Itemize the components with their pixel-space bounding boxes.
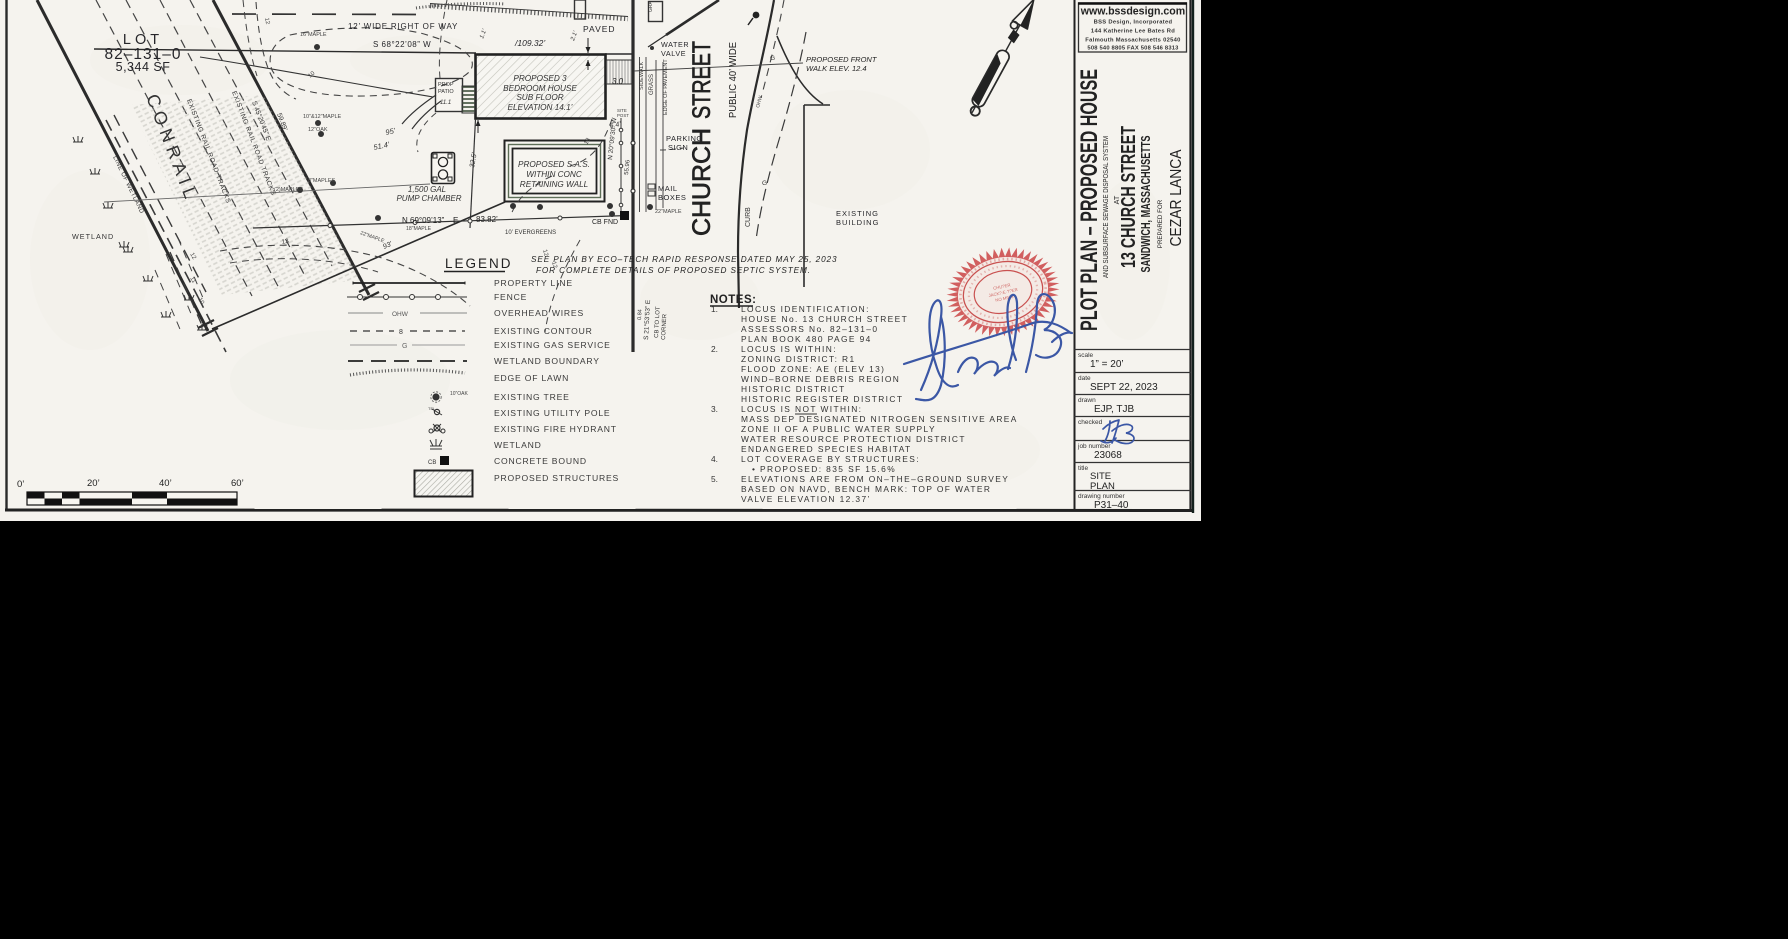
svg-text:2.: 2.: [711, 344, 718, 354]
svg-text:4.: 4.: [711, 454, 718, 464]
svg-text:10”OAK: 10”OAK: [450, 391, 468, 397]
svg-text:PARKING: PARKING: [666, 134, 703, 143]
svg-text:PROPERTY LINE: PROPERTY LINE: [494, 278, 573, 288]
svg-text:G: G: [770, 55, 775, 62]
svg-text:MASS DEP DESIGNATED NITROGEN S: MASS DEP DESIGNATED NITROGEN SENSITIVE A…: [741, 414, 1018, 424]
svg-text:G: G: [762, 180, 767, 187]
svg-text:PLAN BOOK 480 PAGE 94: PLAN BOOK 480 PAGE 94: [741, 334, 872, 344]
svg-text:PROPOSED 3: PROPOSED 3: [513, 74, 567, 83]
svg-text:SIGN: SIGN: [668, 143, 688, 152]
svg-text:date: date: [1078, 375, 1091, 382]
svg-text:PUBLIC 40’ WIDE: PUBLIC 40’ WIDE: [728, 42, 739, 118]
svg-text:SUB FLOOR: SUB FLOOR: [516, 93, 563, 102]
svg-text:scale: scale: [1078, 352, 1094, 359]
svg-text:AND SUBSURFACE SEWAGE DISPOSAL: AND SUBSURFACE SEWAGE DISPOSAL SYSTEM: [1101, 136, 1110, 278]
svg-text:PROPOSED FRONT: PROPOSED FRONT: [806, 55, 878, 64]
svg-text:SEPT 22, 2023: SEPT 22, 2023: [1090, 382, 1158, 393]
svg-text:PROPOSED S.A.S.: PROPOSED S.A.S.: [518, 160, 590, 169]
svg-text:WIND–BORNE DEBRIS REGION: WIND–BORNE DEBRIS REGION: [741, 374, 900, 384]
svg-text:40’: 40’: [159, 478, 172, 489]
svg-text:LOCUS IS NOT WITHIN:: LOCUS IS NOT WITHIN:: [741, 404, 862, 414]
svg-text:drawing number: drawing number: [1078, 493, 1125, 500]
svg-text:SIDEWALK: SIDEWALK: [639, 61, 645, 90]
svg-text:CB: CB: [428, 460, 436, 466]
svg-text:20’: 20’: [87, 478, 100, 489]
svg-text:EXISTING CONTOUR: EXISTING CONTOUR: [494, 326, 593, 336]
svg-text:S 68°22’08” W: S 68°22’08” W: [373, 40, 431, 49]
svg-text:CEZAR LANCA: CEZAR LANCA: [1168, 149, 1185, 246]
svg-text:P31–40: P31–40: [1094, 500, 1129, 511]
svg-text:LEGEND: LEGEND: [445, 256, 513, 271]
svg-text:10’ EVERGREENS: 10’ EVERGREENS: [505, 230, 556, 236]
svg-text:RETAINING WALL: RETAINING WALL: [520, 180, 588, 189]
svg-text:/109.32’: /109.32’: [514, 38, 545, 48]
svg-text:BEDROOM HOUSE: BEDROOM HOUSE: [503, 84, 577, 93]
svg-text:1,500 GAL: 1,500 GAL: [408, 185, 446, 194]
svg-text:PATIO: PATIO: [438, 89, 454, 95]
svg-text:WETLAND: WETLAND: [494, 440, 542, 450]
svg-text:1.: 1.: [711, 304, 718, 314]
svg-text:WETLAND BOUNDARY: WETLAND BOUNDARY: [494, 356, 600, 366]
svg-text:OVERHEAD WIRES: OVERHEAD WIRES: [494, 308, 584, 318]
svg-text:5.: 5.: [711, 474, 718, 484]
svg-text:8”MAPLES: 8”MAPLES: [308, 178, 336, 184]
svg-text:PUMP CHAMBER: PUMP CHAMBER: [396, 194, 461, 203]
svg-text:0’: 0’: [17, 479, 24, 490]
svg-text:WATER RESOURCE PROTECTION DIST: WATER RESOURCE PROTECTION DISTRICT: [741, 434, 966, 444]
svg-text:LOCUS IDENTIFICATION:: LOCUS IDENTIFICATION:: [741, 304, 870, 314]
svg-text:11.1: 11.1: [440, 100, 451, 106]
svg-text:title: title: [1078, 465, 1089, 472]
svg-text:drawn: drawn: [1078, 397, 1096, 404]
svg-text:1” = 20’: 1” = 20’: [1090, 359, 1124, 370]
svg-text:www.bssdesign.com: www.bssdesign.com: [1080, 6, 1185, 18]
svg-text:60’: 60’: [231, 478, 244, 489]
svg-text:EDGE OF PAVEMENT: EDGE OF PAVEMENT: [663, 59, 669, 115]
svg-text:CONCRETE BOUND: CONCRETE BOUND: [494, 456, 587, 466]
svg-text:PAVED: PAVED: [583, 24, 616, 34]
svg-text:EXISTING TREE: EXISTING TREE: [494, 392, 570, 402]
svg-text:SANDWICH, MASSACHUSETTS: SANDWICH, MASSACHUSETTS: [1138, 135, 1153, 272]
svg-text:STREET: STREET: [688, 41, 716, 119]
svg-text:HOUSE No. 13 CHURCH STREET: HOUSE No. 13 CHURCH STREET: [741, 314, 908, 324]
svg-text:CHURCH: CHURCH: [688, 128, 716, 236]
svg-text:ELEVATIONS ARE FROM ON–THE–GRO: ELEVATIONS ARE FROM ON–THE–GROUND SURVEY: [741, 474, 1009, 484]
svg-text:MAIL: MAIL: [658, 184, 678, 193]
svg-text:PROP: PROP: [438, 82, 454, 88]
svg-text:FENCE: FENCE: [494, 292, 527, 302]
svg-text:job number: job number: [1077, 443, 1111, 450]
svg-text:LOCUS IS WITHIN:: LOCUS IS WITHIN:: [741, 344, 837, 354]
svg-text:WITHIN CONC: WITHIN CONC: [526, 170, 582, 179]
svg-text:23068: 23068: [1094, 450, 1122, 461]
svg-text:EDGE OF LAWN: EDGE OF LAWN: [494, 373, 569, 383]
svg-text:ZONE II OF A PUBLIC WATER SUPP: ZONE II OF A PUBLIC WATER SUPPLY: [741, 424, 936, 434]
svg-text:WETLAND: WETLAND: [72, 232, 114, 241]
svg-text:0.84: 0.84: [637, 309, 644, 320]
svg-text:BASED ON NAVD, BENCH MARK: TOP: BASED ON NAVD, BENCH MARK: TOP OF WATER: [741, 484, 991, 494]
svg-text:HISTORIC DISTRICT: HISTORIC DISTRICT: [741, 384, 846, 394]
svg-text:TEL: TEL: [428, 406, 436, 411]
svg-text:• PROPOSED: 835 SF 15.6%: • PROPOSED: 835 SF 15.6%: [752, 464, 896, 474]
svg-text:WATER: WATER: [661, 40, 689, 49]
svg-text:checked: checked: [1078, 419, 1103, 426]
svg-text:EJP, TJB: EJP, TJB: [1094, 404, 1135, 415]
svg-text:EXISTING UTILITY POLE: EXISTING UTILITY POLE: [494, 408, 610, 418]
svg-text:G: G: [402, 343, 407, 350]
svg-text:ENDANGERED SPECIES HABITAT: ENDANGERED SPECIES HABITAT: [741, 444, 912, 454]
svg-text:VALVE ELEVATION 12.37’: VALVE ELEVATION 12.37’: [741, 494, 871, 504]
svg-text:WALK ELEV. 12.4: WALK ELEV. 12.4: [806, 64, 867, 73]
svg-text:N 69°09’13”: N 69°09’13”: [402, 216, 445, 225]
svg-text:ASSESSORS No. 82–131–0: ASSESSORS No. 82–131–0: [741, 324, 878, 334]
svg-text:16”MAPLE: 16”MAPLE: [300, 32, 327, 38]
svg-text:10”&12”MAPLE: 10”&12”MAPLE: [303, 114, 342, 120]
svg-text:GRA: GRA: [648, 1, 654, 13]
svg-text:LOT COVERAGE BY STRUCTURES:: LOT COVERAGE BY STRUCTURES:: [741, 454, 920, 464]
svg-text:144 Katherine Lee Bates Rd: 144 Katherine Lee Bates Rd: [1091, 29, 1175, 35]
svg-text:EXISTING: EXISTING: [836, 209, 879, 218]
svg-text:ZONING DISTRICT: R1: ZONING DISTRICT: R1: [741, 354, 856, 364]
svg-text:SEE PLAN BY ECO–TECH RAPID RES: SEE PLAN BY ECO–TECH RAPID RESPONSE DATE…: [531, 255, 837, 264]
svg-text:GRASS: GRASS: [649, 74, 655, 95]
svg-text:PREPARED FOR: PREPARED FOR: [1157, 199, 1164, 248]
svg-text:3.: 3.: [711, 404, 718, 414]
svg-text:FLOOD ZONE: AE (ELEV 13): FLOOD ZONE: AE (ELEV 13): [741, 364, 885, 374]
svg-text:EXISTING GAS SERVICE: EXISTING GAS SERVICE: [494, 340, 611, 350]
svg-text:PLAN: PLAN: [1090, 481, 1115, 492]
svg-text:BSS Design, Incorporated: BSS Design, Incorporated: [1094, 20, 1173, 26]
svg-text:12”OAK: 12”OAK: [308, 127, 328, 133]
svg-text:8: 8: [399, 329, 403, 336]
svg-text:22”MAPLE: 22”MAPLE: [655, 209, 682, 215]
svg-text:EXISTING FIRE HYDRANT: EXISTING FIRE HYDRANT: [494, 424, 617, 434]
svg-text:POST: POST: [617, 113, 629, 118]
svg-text:3.0: 3.0: [612, 77, 624, 86]
svg-text:13 CHURCH STREET: 13 CHURCH STREET: [1118, 126, 1140, 268]
svg-text:E: E: [453, 216, 458, 225]
svg-text:(2)MAPLES: (2)MAPLES: [274, 187, 303, 193]
svg-text:CB FND: CB FND: [592, 219, 618, 226]
svg-text:VALVE: VALVE: [661, 49, 686, 58]
svg-text:PROPOSED STRUCTURES: PROPOSED STRUCTURES: [494, 473, 619, 483]
svg-text:FOR COMPLETE DETAILS OF PROPOS: FOR COMPLETE DETAILS OF PROPOSED SEPTIC …: [536, 266, 811, 275]
svg-text:ELEVATION 14.1’: ELEVATION 14.1’: [508, 103, 573, 112]
svg-text:CURB: CURB: [745, 207, 752, 227]
svg-text:PLOT PLAN – PROPOSED HOUSE: PLOT PLAN – PROPOSED HOUSE: [1076, 69, 1103, 331]
svg-text:18”MAPLE: 18”MAPLE: [406, 226, 432, 232]
svg-text:508 540 8805 FAX 508 546 8313: 508 540 8805 FAX 508 546 8313: [1087, 46, 1179, 52]
svg-text:BOXES: BOXES: [658, 193, 686, 202]
svg-text:BUILDING: BUILDING: [836, 218, 879, 227]
svg-text:12’ WIDE RIGHT OF WAY: 12’ WIDE RIGHT OF WAY: [348, 22, 458, 31]
svg-text:OHW: OHW: [392, 311, 409, 318]
svg-text:Falmouth Massachusetts 02540: Falmouth Massachusetts 02540: [1085, 38, 1180, 44]
svg-text:83.82’: 83.82’: [476, 215, 498, 224]
svg-text:5,344 SF: 5,344 SF: [116, 60, 171, 74]
svg-text:HISTORIC REGISTER DISTRICT: HISTORIC REGISTER DISTRICT: [741, 394, 903, 404]
